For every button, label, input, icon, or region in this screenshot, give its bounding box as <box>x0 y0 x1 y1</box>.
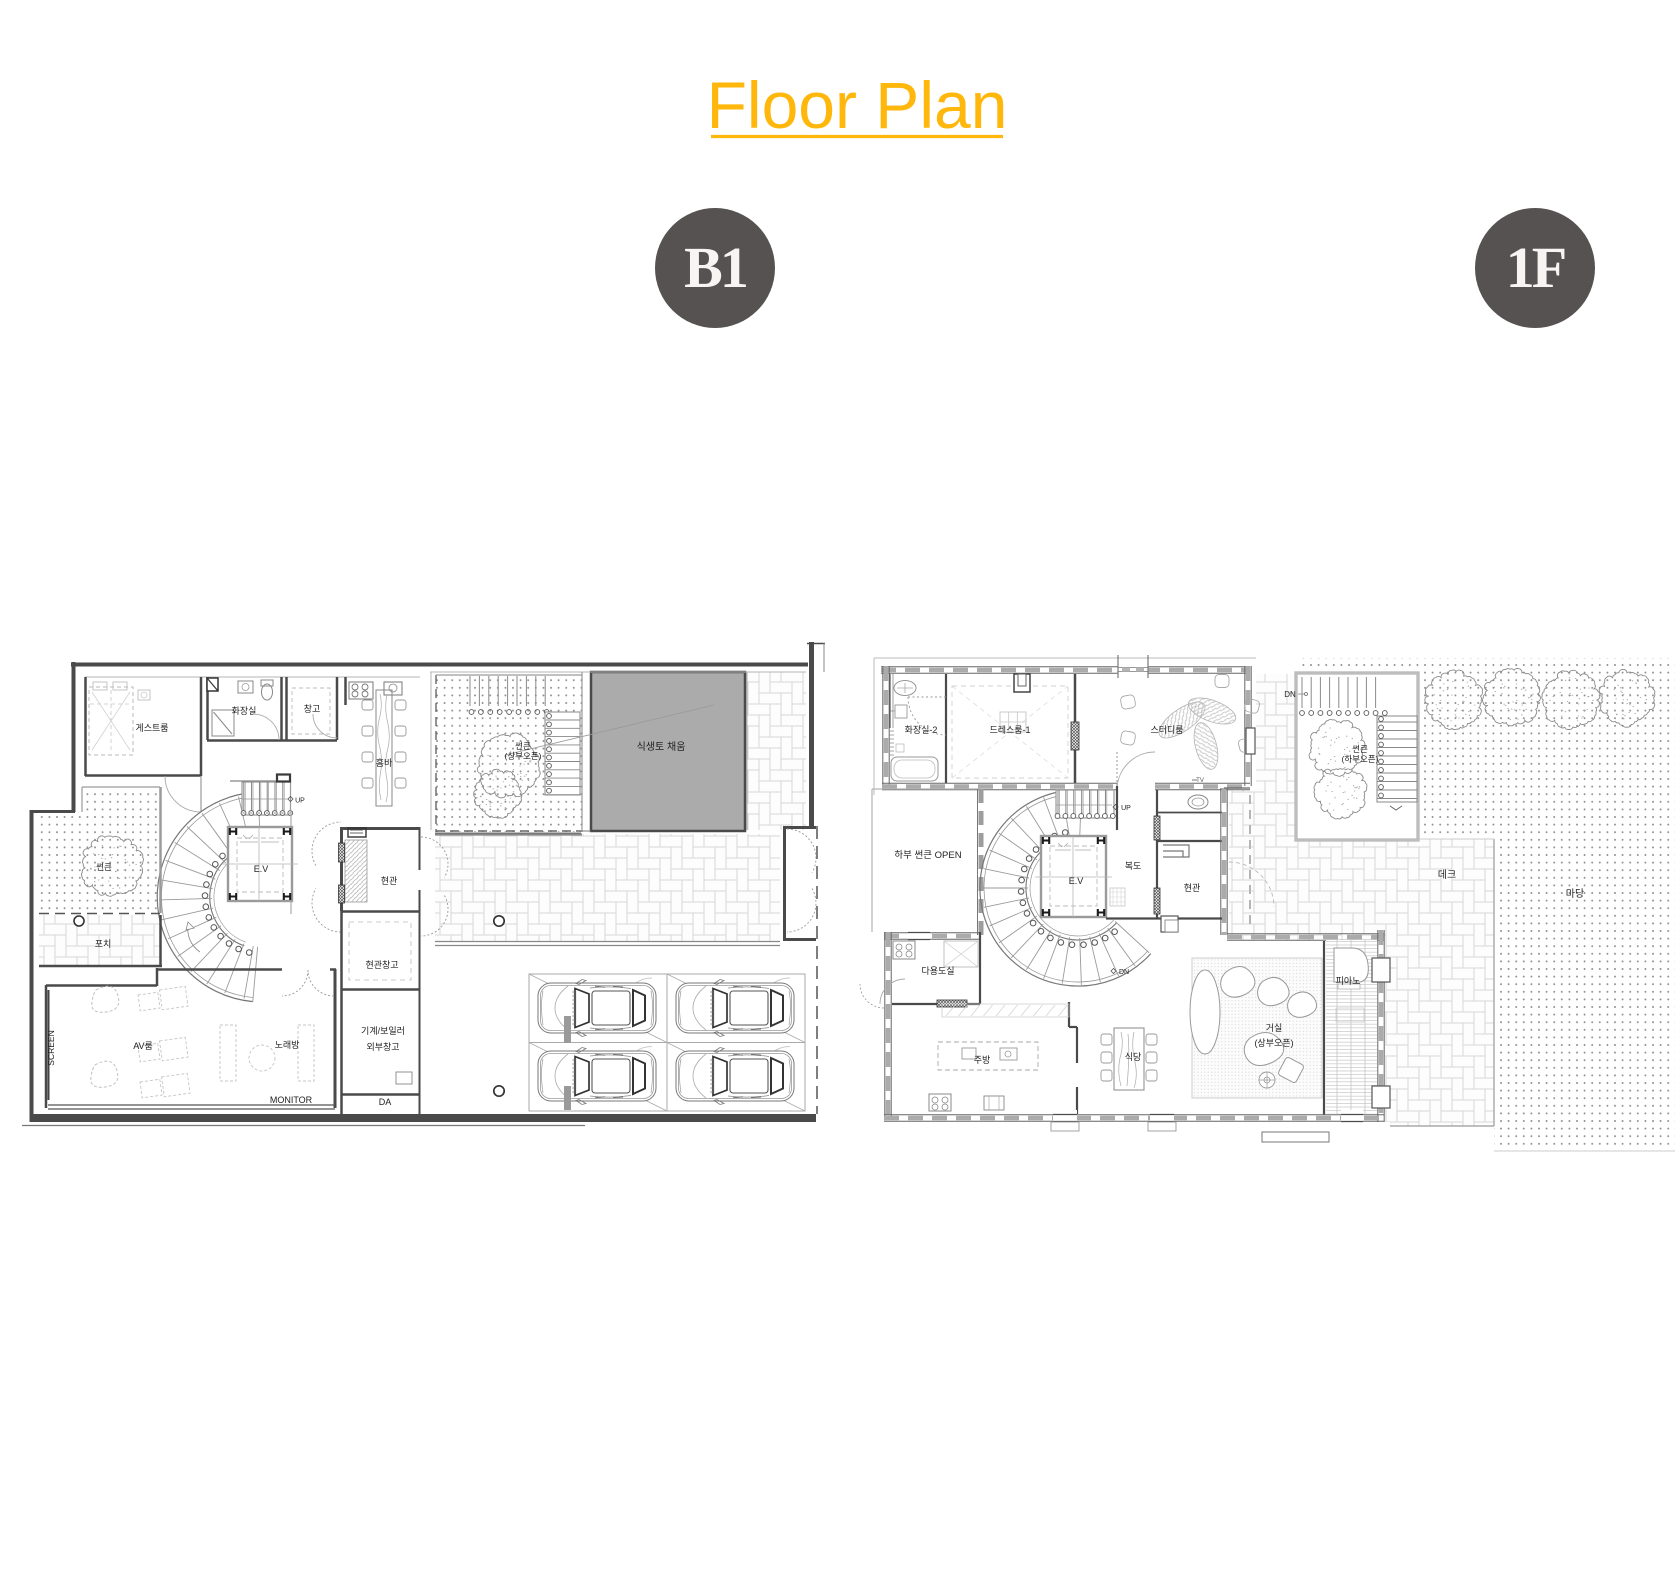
svg-text:TV: TV <box>1196 778 1204 784</box>
svg-text:현관창고: 현관창고 <box>365 960 398 970</box>
svg-text:썬큰: 썬큰 <box>96 862 112 872</box>
svg-text:UP: UP <box>1121 805 1131 812</box>
svg-text:현관: 현관 <box>381 876 398 886</box>
svg-text:Floor Plan: Floor Plan <box>707 68 1008 142</box>
svg-text:게스트룸: 게스트룸 <box>135 723 168 733</box>
svg-text:1F: 1F <box>1506 235 1565 300</box>
svg-text:포치: 포치 <box>95 938 112 949</box>
svg-text:기계/보일러: 기계/보일러 <box>361 1025 405 1036</box>
svg-text:다용도실: 다용도실 <box>921 966 954 976</box>
svg-text:E.V: E.V <box>254 864 269 874</box>
svg-text:노래방: 노래방 <box>275 1040 300 1050</box>
svg-text:마당: 마당 <box>1566 888 1584 900</box>
svg-text:하부 썬큰 OPEN: 하부 썬큰 OPEN <box>894 849 961 861</box>
svg-text:스터디룸: 스터디룸 <box>1150 725 1183 735</box>
svg-text:썬큰: 썬큰 <box>515 741 531 751</box>
svg-text:UP: UP <box>295 798 305 805</box>
svg-text:DN: DN <box>1284 690 1296 699</box>
svg-text:현관: 현관 <box>1184 883 1201 893</box>
svg-text:창고: 창고 <box>304 704 321 714</box>
svg-text:홈바: 홈바 <box>376 757 393 768</box>
svg-text:주방: 주방 <box>974 1055 991 1065</box>
svg-text:AV룸: AV룸 <box>133 1041 153 1051</box>
svg-text:화장실-2: 화장실-2 <box>905 725 938 735</box>
svg-text:썬큰: 썬큰 <box>1352 744 1368 754</box>
svg-text:데크: 데크 <box>1438 869 1456 881</box>
svg-text:식생토 채움: 식생토 채움 <box>637 741 686 753</box>
svg-text:MONITOR: MONITOR <box>270 1095 313 1105</box>
svg-text:(상부오픈): (상부오픈) <box>1254 1038 1293 1048</box>
svg-text:거실: 거실 <box>1266 1023 1283 1033</box>
svg-text:E.V: E.V <box>1069 876 1084 886</box>
svg-text:피아노: 피아노 <box>1336 976 1361 986</box>
svg-text:(상부오픈): (상부오픈) <box>505 751 542 761</box>
svg-text:식당: 식당 <box>1125 1052 1142 1062</box>
svg-text:DN: DN <box>1119 969 1129 976</box>
svg-text:DA: DA <box>379 1097 392 1107</box>
svg-text:드레스룸-1: 드레스룸-1 <box>989 725 1030 735</box>
svg-text:SCREEN: SCREEN <box>46 1030 56 1065</box>
svg-text:복도: 복도 <box>1125 861 1142 871</box>
svg-text:B1: B1 <box>684 235 746 300</box>
svg-text:외부창고: 외부창고 <box>366 1041 399 1052</box>
svg-text:화장실: 화장실 <box>232 706 257 716</box>
svg-text:(하부오픈): (하부오픈) <box>1342 754 1379 764</box>
